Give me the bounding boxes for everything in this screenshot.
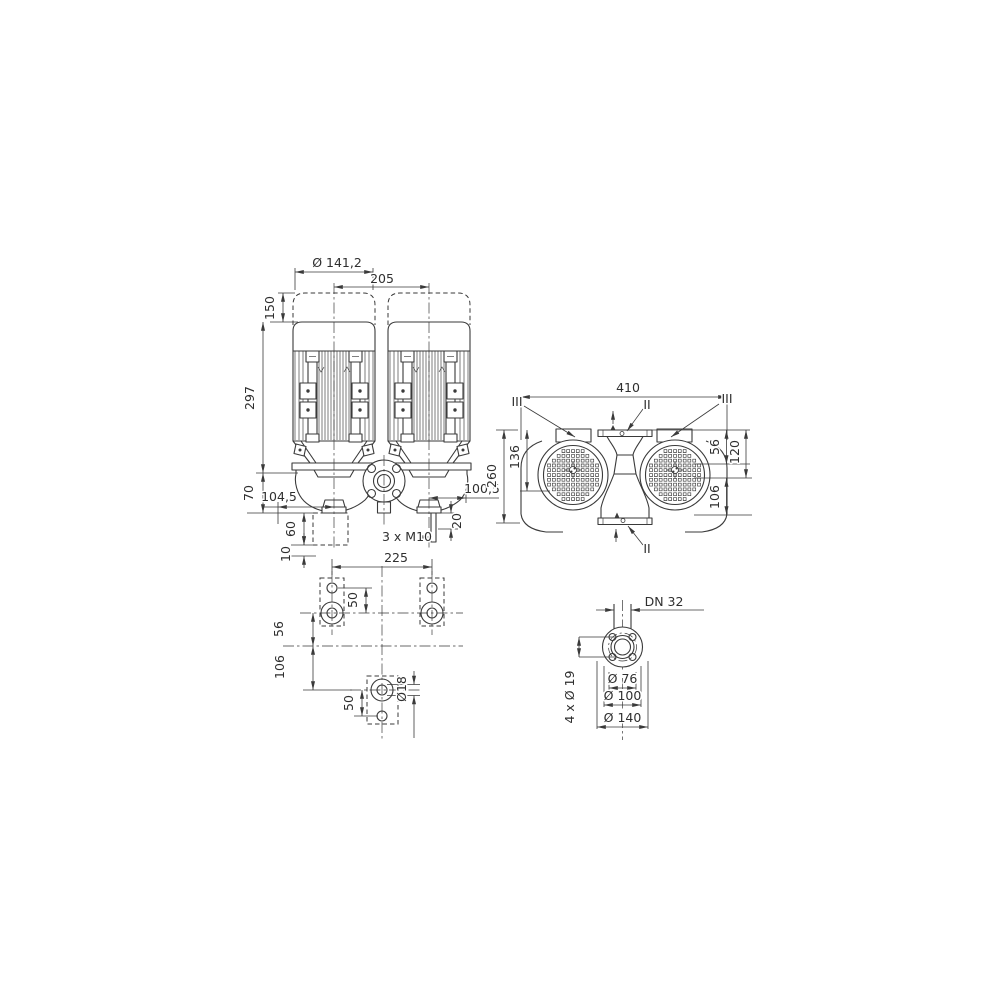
dim-box-depth-label: 56	[707, 439, 722, 455]
level-mark-top	[611, 425, 616, 430]
dim-stud-thread-label: 3 x M10	[382, 529, 432, 544]
top-port-flange	[598, 430, 652, 437]
clearance-box-dashed	[313, 513, 348, 545]
dim-bolt-circle-label: Ø 100	[604, 688, 642, 703]
foot-plan-dimensions: 225 50 56 106 50 Ø18	[271, 550, 432, 738]
dim-axis-offset-label: 136	[507, 445, 522, 469]
dim-axis-to-flange-label: 106	[707, 485, 722, 509]
dim-overall-width-label: 410	[616, 380, 640, 395]
dim-hole-offset-top-label: 50	[345, 592, 360, 608]
dim-hole-diameter-label: Ø18	[394, 676, 409, 702]
dim-nominal-diameter-label: DN 32	[645, 594, 684, 609]
dim-axis-offset-label: 56	[271, 621, 286, 637]
dim-motor-height-label: 297	[242, 386, 257, 410]
dim-outer-diameter-label: Ø 140	[604, 710, 642, 725]
drawing-canvas: Ø 141,2 205 150 297 70 104,5 100,5 60 1	[0, 0, 1000, 1000]
dim-flange-to-axis-label: 120	[727, 440, 742, 464]
dim-motor-diameter-label: Ø 141,2	[312, 255, 362, 270]
dim-bolt-holes-label: 4 x Ø 19	[562, 670, 577, 723]
flange-detail-view: DN 32 4 x Ø 19 Ø 76 Ø 100 Ø 140	[562, 594, 704, 740]
terminal-box-label-right: III	[721, 391, 732, 406]
dim-left-axis-offset-label: 104,5	[261, 489, 297, 504]
plan-view: 410 260 136 56 120 106 II II III III	[484, 380, 752, 556]
dim-raised-face-label: Ø 76	[608, 671, 638, 686]
port-label-top: II	[643, 397, 650, 412]
dim-axis-distance-label: 205	[370, 271, 394, 286]
dim-cap-height-label: 150	[262, 296, 277, 320]
front-elevation-view: Ø 141,2 205 150 297 70 104,5 100,5 60 1	[241, 255, 500, 568]
centre-flange-front	[363, 460, 405, 513]
dim-hole-offset-bottom-label: 50	[341, 695, 356, 711]
dim-stud-length-label: 20	[449, 513, 464, 529]
dim-axis-to-mounting-label: 70	[241, 485, 256, 501]
dim-axis-to-foot-label: 106	[272, 655, 287, 679]
foot-plan-view: 225 50 56 106 50 Ø18	[271, 550, 463, 740]
dim-overall-depth-label: 260	[484, 464, 499, 488]
dim-base-gap-label: 10	[278, 546, 293, 562]
pump-dimensional-drawing: Ø 141,2 205 150 297 70 104,5 100,5 60 1	[0, 0, 1000, 1000]
dim-clearance-height-label: 60	[283, 521, 298, 537]
port-label-bottom: II	[643, 541, 650, 556]
level-mark-bottom	[615, 513, 620, 519]
dim-foot-spacing-label: 225	[384, 550, 408, 565]
terminal-box-label-left: III	[511, 394, 522, 409]
